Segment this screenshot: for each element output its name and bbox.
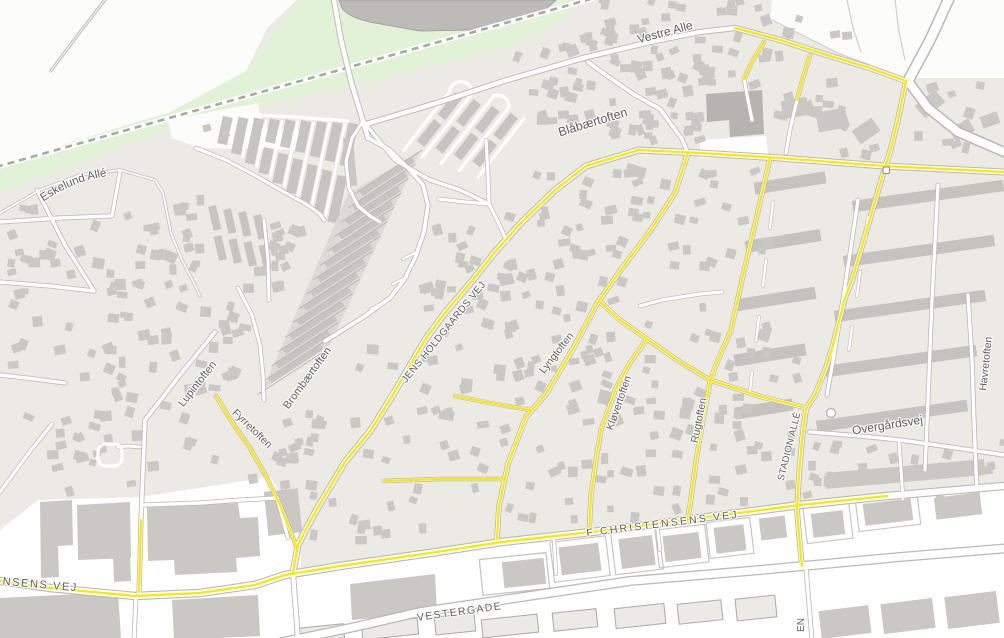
svg-text:EN: EN — [796, 618, 807, 632]
